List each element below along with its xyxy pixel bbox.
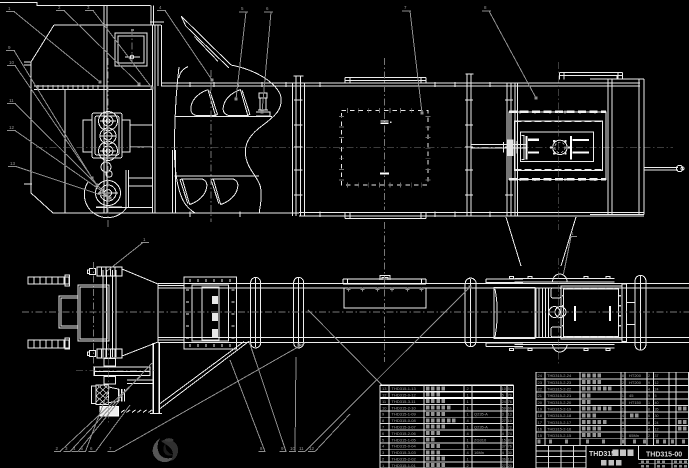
svg-text:24: 24: [502, 400, 506, 404]
svg-text:12: 12: [382, 393, 387, 398]
svg-text:8: 8: [648, 421, 650, 425]
svg-text:82: 82: [508, 438, 512, 442]
svg-text:Q235-A: Q235-A: [474, 412, 488, 417]
svg-text:16Mn: 16Mn: [474, 450, 484, 455]
svg-text:66: 66: [508, 406, 512, 410]
svg-text:40: 40: [655, 401, 659, 405]
svg-text:6: 6: [648, 414, 650, 418]
svg-text:THD315: THD315: [589, 451, 615, 458]
svg-text:THD315-2-10: THD315-2-10: [392, 405, 417, 410]
svg-text:5: 5: [502, 394, 504, 398]
svg-text:12: 12: [9, 125, 15, 130]
svg-text:THD315-2-23: THD315-2-23: [547, 380, 572, 385]
svg-text:4: 4: [648, 388, 650, 392]
svg-text:12: 12: [309, 446, 315, 451]
svg-text:17: 17: [538, 420, 543, 425]
svg-text:THD315-0-12: THD315-0-12: [392, 393, 417, 398]
svg-text:3: 3: [502, 413, 504, 417]
svg-text:37: 37: [502, 445, 506, 449]
svg-text:THD315-2-19: THD315-2-19: [547, 406, 572, 411]
svg-text:23: 23: [538, 380, 543, 385]
svg-text:21: 21: [538, 393, 543, 398]
svg-text:13: 13: [382, 386, 387, 391]
svg-text:8: 8: [648, 407, 650, 411]
svg-text:15: 15: [538, 433, 543, 438]
svg-text:52: 52: [508, 387, 512, 391]
svg-text:15: 15: [502, 438, 506, 442]
svg-text:THD315-0-04: THD315-0-04: [392, 444, 417, 449]
svg-text:THD315-1-09: THD315-1-09: [392, 412, 417, 417]
svg-text:HT150: HT150: [629, 400, 642, 405]
svg-text:65Mn: 65Mn: [629, 433, 639, 438]
svg-text:76: 76: [508, 400, 512, 404]
svg-text:24: 24: [655, 421, 659, 425]
svg-text:72: 72: [508, 426, 512, 430]
svg-text:11: 11: [9, 98, 14, 103]
svg-text:THD315-1-13: THD315-1-13: [392, 386, 417, 391]
svg-text:10: 10: [382, 405, 387, 410]
svg-text:35: 35: [655, 407, 659, 411]
svg-text:9: 9: [648, 394, 650, 398]
svg-text:16: 16: [538, 426, 543, 431]
svg-text:2: 2: [648, 374, 650, 378]
svg-text:2: 2: [648, 434, 650, 438]
svg-text:5: 5: [655, 394, 657, 398]
svg-text:59: 59: [502, 406, 506, 410]
svg-text:37: 37: [655, 374, 659, 378]
svg-text:24: 24: [538, 373, 543, 378]
svg-text:4: 4: [648, 427, 650, 431]
svg-text:THD315-2-20: THD315-2-20: [547, 400, 572, 405]
svg-text:THD315-2-24: THD315-2-24: [547, 373, 572, 378]
svg-text:10: 10: [502, 387, 506, 391]
svg-text:THD315-2-22: THD315-2-22: [547, 387, 572, 392]
svg-text:27: 27: [502, 419, 506, 423]
svg-text:13: 13: [10, 161, 16, 166]
svg-text:HT200: HT200: [629, 373, 642, 378]
svg-text:THD315-1-01: THD315-1-01: [392, 463, 417, 468]
svg-text:11: 11: [299, 446, 304, 451]
svg-text:70: 70: [508, 394, 512, 398]
svg-text:THD315-2-06: THD315-2-06: [392, 431, 417, 436]
svg-text:36: 36: [502, 458, 506, 462]
svg-text:THD315-00: THD315-00: [646, 452, 682, 459]
svg-text:19: 19: [508, 458, 512, 462]
svg-text:18: 18: [538, 413, 543, 418]
svg-text:THD315-2-21: THD315-2-21: [547, 393, 572, 398]
svg-text:20: 20: [508, 464, 512, 468]
svg-text:THD315-2-17: THD315-2-17: [547, 420, 572, 425]
svg-text:22: 22: [538, 387, 543, 392]
svg-text:6: 6: [502, 426, 504, 430]
svg-text:4: 4: [502, 451, 504, 455]
svg-text:THD315-3-03: THD315-3-03: [392, 450, 417, 455]
svg-text:10: 10: [508, 419, 512, 423]
svg-text:20: 20: [538, 400, 543, 405]
svg-text:THD315-0-08: THD315-0-08: [392, 418, 417, 423]
svg-text:THD315-2-02: THD315-2-02: [392, 457, 417, 462]
svg-text:ZG310: ZG310: [474, 437, 487, 442]
svg-text:74: 74: [508, 432, 512, 436]
svg-text:13: 13: [508, 413, 512, 417]
svg-text:1: 1: [648, 401, 650, 405]
svg-text:THD315-1-05: THD315-1-05: [392, 437, 417, 442]
svg-text:45: 45: [629, 393, 634, 398]
svg-text:12: 12: [655, 427, 659, 431]
svg-text:9: 9: [648, 381, 650, 385]
svg-text:30: 30: [508, 451, 512, 455]
svg-text:24: 24: [655, 388, 659, 392]
svg-text:HT200: HT200: [629, 380, 642, 385]
svg-text:THD315-2-16: THD315-2-16: [547, 426, 572, 431]
svg-text:27: 27: [502, 464, 506, 468]
svg-text:37: 37: [655, 434, 659, 438]
svg-text:76: 76: [508, 445, 512, 449]
svg-text:12: 12: [655, 381, 659, 385]
svg-text:4: 4: [502, 432, 504, 436]
svg-text:THD315-3-07: THD315-3-07: [392, 425, 417, 430]
svg-text:THD315-2-18: THD315-2-18: [547, 413, 572, 418]
svg-text:THD315-3-11: THD315-3-11: [392, 399, 417, 404]
svg-text:30: 30: [655, 414, 659, 418]
svg-text:Q235-A: Q235-A: [474, 425, 488, 430]
svg-text:10: 10: [9, 60, 15, 65]
svg-text:THD315-2-15: THD315-2-15: [547, 433, 572, 438]
svg-text:19: 19: [538, 406, 543, 411]
